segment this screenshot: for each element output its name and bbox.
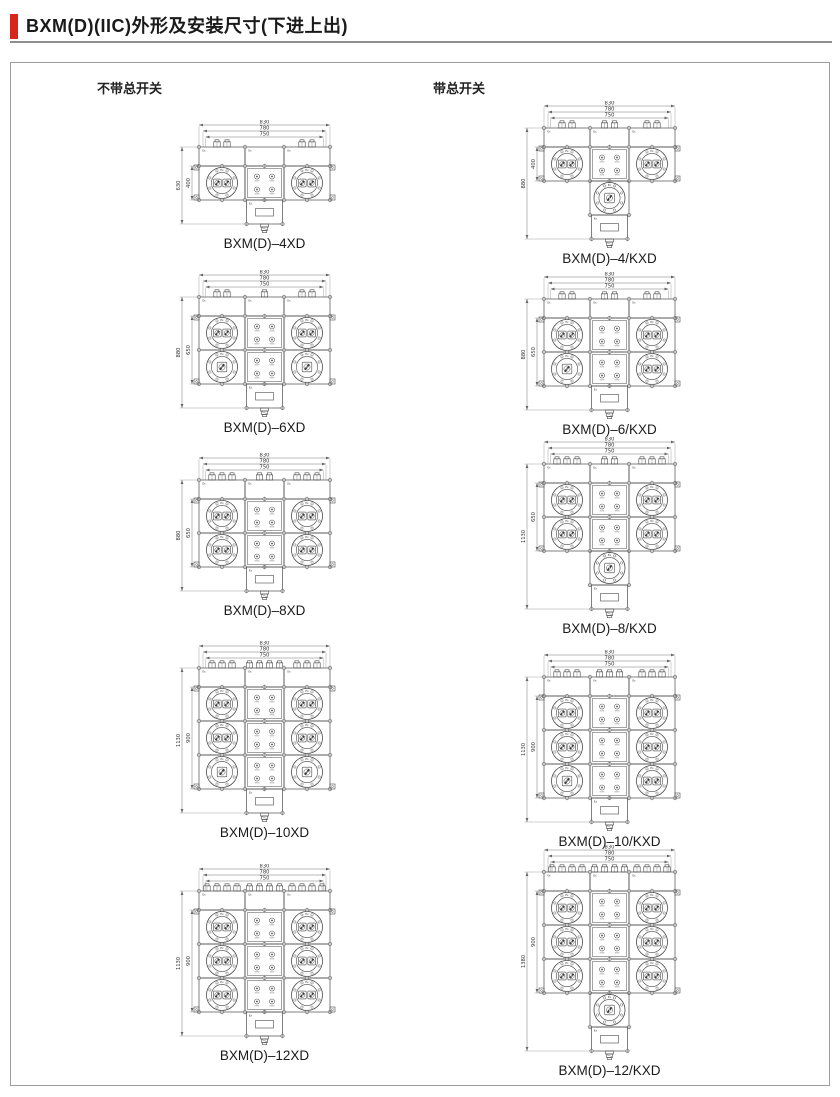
svg-text:Ex: Ex [249, 202, 253, 206]
svg-text:Ex: Ex [202, 299, 206, 303]
figure-bxmd-12xd: 8307807501130900ExExExExExExExExExEx BXM… [151, 864, 381, 1063]
svg-text:1130: 1130 [521, 530, 527, 543]
svg-text:1130: 1130 [176, 734, 182, 747]
svg-text:Ex: Ex [220, 757, 224, 761]
svg-text:Ex: Ex [608, 553, 612, 557]
svg-text:Ex: Ex [305, 501, 309, 505]
figure-bxmd-4xd: 830780750630400ExExExExExEx BXM(D)–4XD [151, 120, 381, 251]
svg-text:Ex: Ex [248, 893, 252, 897]
figure-label: BXM(D)–8XD [151, 603, 378, 618]
svg-text:750: 750 [260, 465, 270, 471]
svg-text:Ex: Ex [593, 466, 597, 470]
svg-text:Ex: Ex [565, 320, 569, 324]
svg-text:Ex: Ex [202, 149, 206, 153]
svg-text:Ex: Ex [220, 318, 224, 322]
svg-text:Ex: Ex [650, 519, 654, 523]
svg-text:Ex: Ex [594, 587, 598, 591]
svg-text:Ex: Ex [305, 723, 309, 727]
svg-text:Ex: Ex [305, 980, 309, 984]
drawing-bxmd-4kxd: 830780750880400ExExExExExExEx [496, 101, 726, 250]
svg-text:Ex: Ex [249, 1014, 253, 1018]
svg-text:900: 900 [186, 733, 192, 743]
svg-text:Ex: Ex [220, 352, 224, 356]
svg-text:Ex: Ex [249, 386, 253, 390]
drawing-bxmd-12xd: 8307807501130900ExExExExExExExExExEx [151, 864, 381, 1047]
svg-text:Ex: Ex [287, 482, 291, 486]
svg-text:Ex: Ex [305, 946, 309, 950]
svg-text:880: 880 [176, 348, 182, 358]
svg-text:Ex: Ex [220, 501, 224, 505]
svg-text:Ex: Ex [608, 995, 612, 999]
svg-text:Ex: Ex [565, 893, 569, 897]
svg-text:Ex: Ex [632, 874, 636, 878]
figure-bxmd-10xd: 8307807501130900ExExExExExExExExExEx BXM… [151, 641, 381, 840]
svg-text:750: 750 [605, 857, 615, 863]
svg-text:650: 650 [531, 347, 537, 357]
svg-text:Ex: Ex [547, 301, 551, 305]
drawing-bxmd-10kxd: 8307807501130900ExExExExExExExExExEx [496, 650, 726, 833]
figure-label: BXM(D)–4XD [151, 236, 378, 251]
svg-text:Ex: Ex [632, 301, 636, 305]
figure-label: BXM(D)–6/KXD [496, 422, 723, 437]
svg-text:880: 880 [176, 531, 182, 541]
svg-text:900: 900 [531, 937, 537, 947]
svg-text:400: 400 [186, 178, 192, 188]
svg-text:Ex: Ex [220, 980, 224, 984]
svg-text:750: 750 [260, 876, 270, 882]
svg-text:Ex: Ex [565, 961, 569, 965]
svg-text:Ex: Ex [565, 485, 569, 489]
svg-text:Ex: Ex [593, 301, 597, 305]
svg-text:Ex: Ex [220, 946, 224, 950]
svg-text:650: 650 [186, 345, 192, 355]
figure-bxmd-12kxd: 8307807501380900ExExExExExExExExExExEx B… [496, 845, 726, 1078]
figure-label: BXM(D)–4/KXD [496, 251, 723, 266]
figure-label: BXM(D)–6XD [151, 420, 378, 435]
figure-bxmd-6xd: 830780750880650ExExExExExExExEx BXM(D)–6… [151, 270, 381, 435]
figure-label: BXM(D)–8/KXD [496, 621, 723, 636]
svg-text:Ex: Ex [305, 912, 309, 916]
svg-text:750: 750 [260, 653, 270, 659]
svg-text:Ex: Ex [305, 757, 309, 761]
figure-bxmd-10kxd: 8307807501130900ExExExExExExExExExEx BXM… [496, 650, 726, 849]
svg-text:Ex: Ex [650, 732, 654, 736]
figure-label: BXM(D)–10XD [151, 825, 378, 840]
svg-text:Ex: Ex [220, 723, 224, 727]
drawing-bxmd-6xd: 830780750880650ExExExExExExExEx [151, 270, 381, 419]
svg-text:Ex: Ex [650, 698, 654, 702]
svg-text:Ex: Ex [650, 320, 654, 324]
svg-text:400: 400 [531, 159, 537, 169]
svg-text:900: 900 [531, 742, 537, 752]
svg-text:Ex: Ex [594, 217, 598, 221]
figure-bxmd-6kxd: 830780750880650ExExExExExExExEx BXM(D)–6… [496, 272, 726, 437]
svg-text:Ex: Ex [248, 482, 252, 486]
svg-text:Ex: Ex [220, 535, 224, 539]
svg-text:Ex: Ex [287, 149, 291, 153]
svg-text:Ex: Ex [565, 732, 569, 736]
drawing-bxmd-4xd: 830780750630400ExExExExExEx [151, 120, 381, 235]
figure-bxmd-4kxd: 830780750880400ExExExExExExEx BXM(D)–4/K… [496, 101, 726, 266]
svg-text:Ex: Ex [287, 670, 291, 674]
catalog-page: BXM(D)(IIC)外形及安装尺寸(下进上出) 不带总开关 带总开关 8307… [0, 0, 840, 1097]
svg-text:Ex: Ex [305, 168, 309, 172]
page-title: BXM(D)(IIC)外形及安装尺寸(下进上出) [26, 12, 348, 38]
svg-text:750: 750 [260, 282, 270, 288]
title-accent-bar [10, 14, 18, 39]
svg-text:Ex: Ex [202, 482, 206, 486]
svg-text:Ex: Ex [594, 388, 598, 392]
figure-bxmd-8xd: 830780750880650ExExExExExExExEx BXM(D)–8… [151, 453, 381, 618]
svg-text:Ex: Ex [249, 791, 253, 795]
svg-text:Ex: Ex [650, 766, 654, 770]
figure-bxmd-8kxd: 8307807501130650ExExExExExExExExEx BXM(D… [496, 437, 726, 636]
svg-text:Ex: Ex [565, 519, 569, 523]
svg-text:Ex: Ex [202, 670, 206, 674]
svg-text:750: 750 [605, 113, 615, 119]
svg-text:Ex: Ex [249, 569, 253, 573]
svg-text:Ex: Ex [565, 698, 569, 702]
svg-text:750: 750 [605, 449, 615, 455]
drawing-bxmd-8kxd: 8307807501130650ExExExExExExExExEx [496, 437, 726, 620]
drawing-bxmd-10xd: 8307807501130900ExExExExExExExExExEx [151, 641, 381, 824]
drawing-bxmd-6kxd: 830780750880650ExExExExExExExEx [496, 272, 726, 421]
svg-text:Ex: Ex [650, 927, 654, 931]
svg-text:Ex: Ex [650, 961, 654, 965]
column-heading-with-main-switch: 带总开关 [433, 78, 485, 97]
svg-text:Ex: Ex [650, 893, 654, 897]
svg-text:750: 750 [260, 132, 270, 138]
svg-text:Ex: Ex [593, 130, 597, 134]
svg-text:Ex: Ex [593, 874, 597, 878]
svg-text:Ex: Ex [547, 130, 551, 134]
svg-text:750: 750 [605, 662, 615, 668]
svg-text:Ex: Ex [305, 535, 309, 539]
svg-text:Ex: Ex [202, 893, 206, 897]
svg-text:Ex: Ex [632, 679, 636, 683]
svg-text:Ex: Ex [220, 168, 224, 172]
svg-text:Ex: Ex [287, 299, 291, 303]
svg-text:Ex: Ex [287, 893, 291, 897]
column-heading-without-main-switch: 不带总开关 [97, 78, 162, 97]
svg-text:Ex: Ex [248, 149, 252, 153]
svg-text:Ex: Ex [547, 874, 551, 878]
svg-text:650: 650 [531, 512, 537, 522]
svg-text:Ex: Ex [632, 130, 636, 134]
svg-text:Ex: Ex [565, 927, 569, 931]
svg-text:Ex: Ex [220, 912, 224, 916]
figure-label: BXM(D)–12XD [151, 1048, 378, 1063]
svg-text:900: 900 [186, 956, 192, 966]
svg-text:Ex: Ex [565, 149, 569, 153]
svg-text:Ex: Ex [305, 352, 309, 356]
drawing-bxmd-8xd: 830780750880650ExExExExExExExEx [151, 453, 381, 602]
svg-text:880: 880 [521, 179, 527, 189]
svg-text:1380: 1380 [521, 955, 527, 968]
svg-text:1130: 1130 [176, 957, 182, 970]
svg-text:Ex: Ex [565, 766, 569, 770]
svg-text:750: 750 [605, 284, 615, 290]
svg-text:Ex: Ex [305, 689, 309, 693]
svg-text:Ex: Ex [547, 679, 551, 683]
svg-text:Ex: Ex [650, 485, 654, 489]
title-rule [10, 41, 832, 43]
svg-text:Ex: Ex [650, 354, 654, 358]
svg-text:1130: 1130 [521, 743, 527, 756]
svg-text:Ex: Ex [632, 466, 636, 470]
svg-text:Ex: Ex [594, 800, 598, 804]
svg-text:Ex: Ex [305, 318, 309, 322]
svg-text:Ex: Ex [593, 679, 597, 683]
svg-text:Ex: Ex [248, 299, 252, 303]
svg-text:Ex: Ex [650, 149, 654, 153]
svg-text:Ex: Ex [220, 689, 224, 693]
svg-text:Ex: Ex [248, 670, 252, 674]
svg-text:650: 650 [186, 528, 192, 538]
svg-text:Ex: Ex [608, 183, 612, 187]
figure-label: BXM(D)–12/KXD [496, 1063, 723, 1078]
drawing-bxmd-12kxd: 8307807501380900ExExExExExExExExExExEx [496, 845, 726, 1062]
svg-text:880: 880 [521, 350, 527, 360]
svg-text:Ex: Ex [594, 1029, 598, 1033]
svg-text:Ex: Ex [547, 466, 551, 470]
svg-text:Ex: Ex [565, 354, 569, 358]
svg-text:630: 630 [176, 181, 182, 191]
